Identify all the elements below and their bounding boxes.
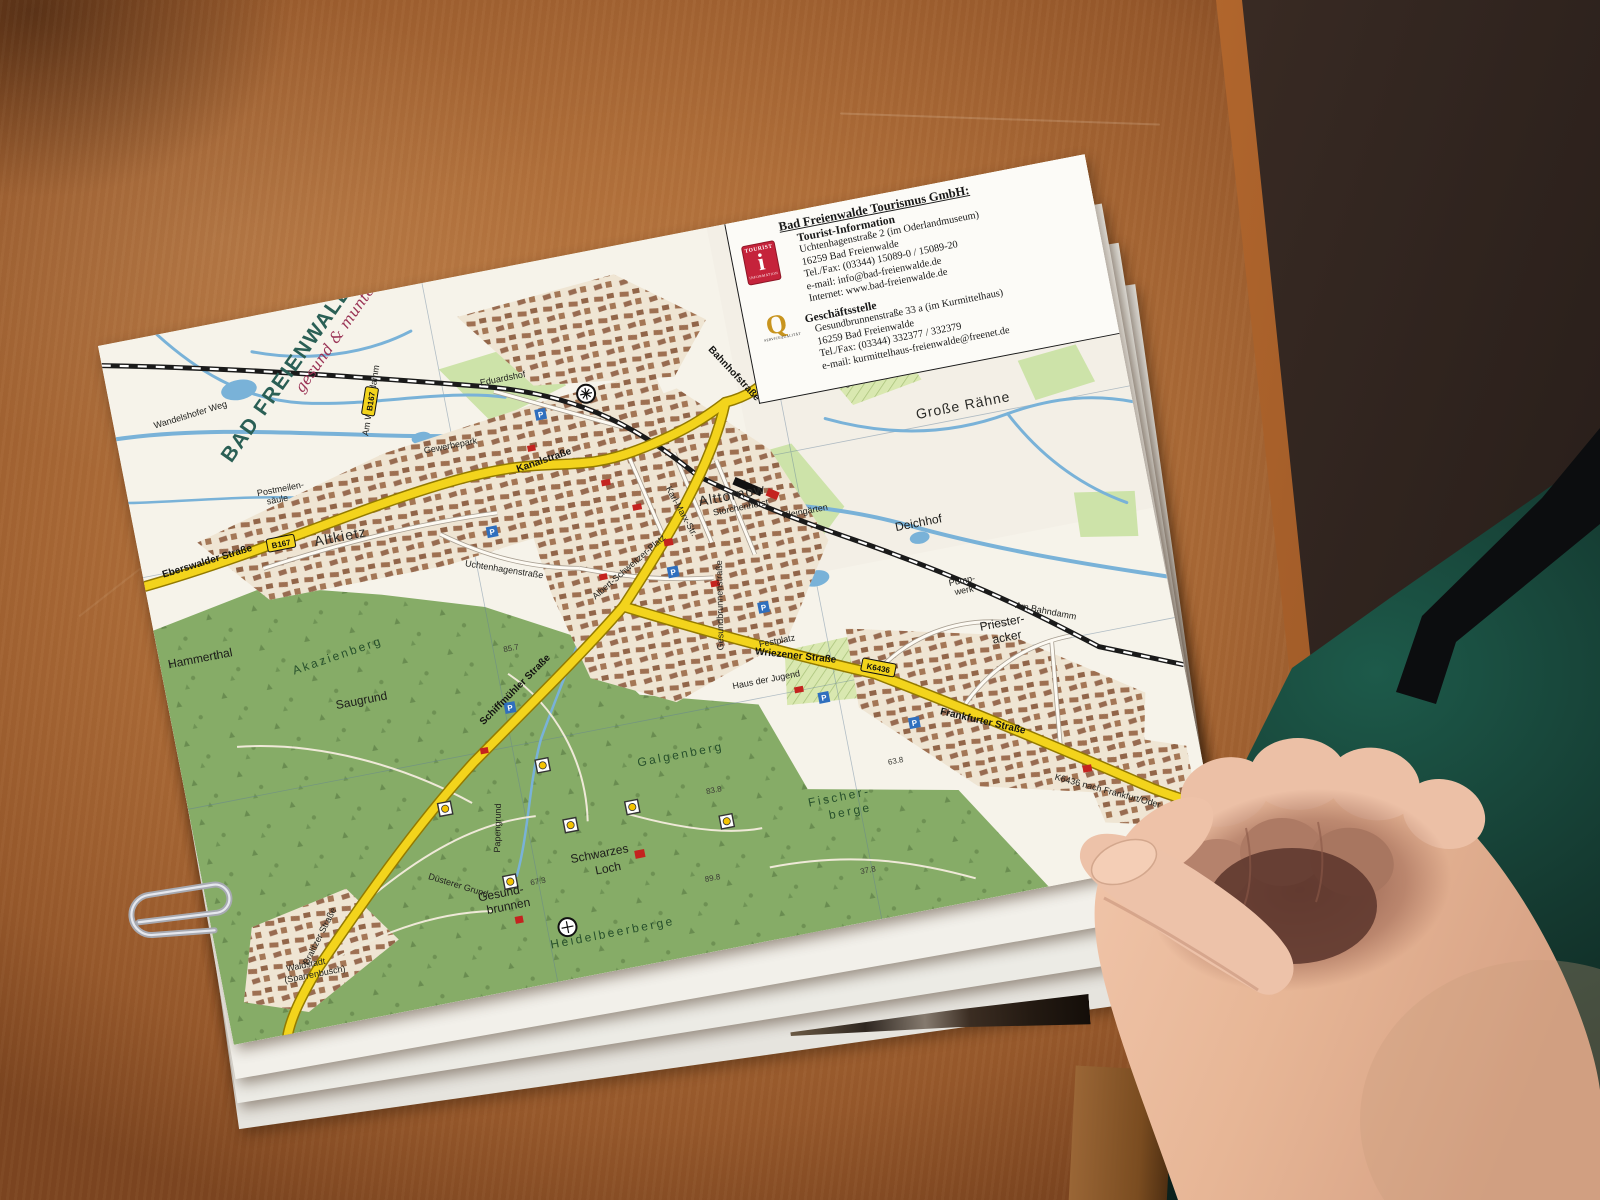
- tourist-information-icon: TOURIST i INFORMATION: [742, 241, 781, 284]
- svg-text:Gesundbrunnenstraße: Gesundbrunnenstraße: [714, 560, 726, 650]
- desk-leg: [1068, 1066, 1173, 1200]
- paperclip[interactable]: [118, 856, 248, 986]
- service-quality-icon: Q SERVICEQUALITÄT: [759, 310, 794, 343]
- svg-text:Papengrund: Papengrund: [492, 803, 503, 852]
- photo-of-city-map-on-desk: P P P P P P P: [0, 0, 1600, 1200]
